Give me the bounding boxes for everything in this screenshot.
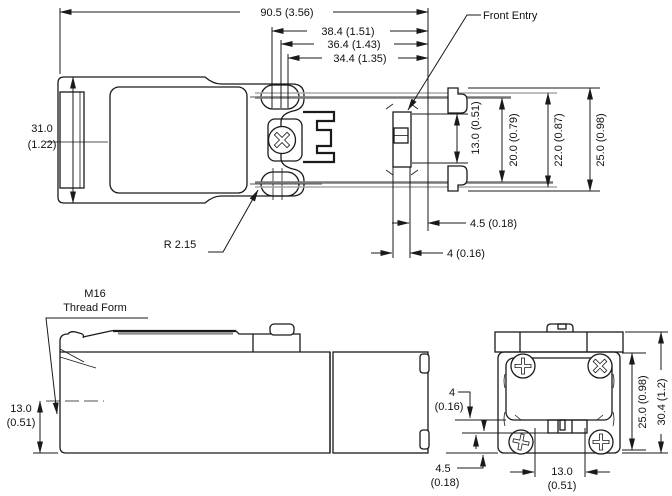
dim-end-width-mm: 13.0 xyxy=(551,466,572,478)
side-body-outline xyxy=(60,352,330,453)
front-entry-block xyxy=(386,104,418,175)
screw-bottom-right xyxy=(589,430,613,454)
dim-end-body-height: 25.0 (0.98) xyxy=(632,353,649,450)
dim-end-bottom-gap-in: (0.18) xyxy=(431,477,460,489)
dim-slot-25-label: 25.0 (0.98) xyxy=(595,113,607,166)
dim-hole-mid-label: 36.4 (1.43) xyxy=(327,39,380,51)
end-connector xyxy=(548,420,587,433)
dim-entry-height: 13.0 (0.51) xyxy=(7,401,104,453)
dim-overall-length: 90.5 (3.56) xyxy=(60,7,428,19)
dim-gap-4-label: 4 (0.16) xyxy=(447,248,485,260)
dim-slot-22: 22.0 (0.87) xyxy=(548,93,565,187)
dim-entry-height-mm: 13.0 xyxy=(10,403,31,415)
dim-body-width: 31.0 (1.22) xyxy=(28,77,73,203)
m16-label-line2: Thread Form xyxy=(63,302,127,314)
dim-entry-height-in: (0.51) xyxy=(7,417,36,429)
dim-body-width-mm: 31.0 xyxy=(31,123,52,135)
cover-screw-button xyxy=(270,324,294,335)
dim-end-bottom-gap: 4.5 (0.18) xyxy=(431,421,484,489)
end-top-tab-notch xyxy=(558,324,566,329)
dim-slot-25: 25.0 (0.98) xyxy=(590,88,607,191)
dim-end-top-gap-in: (0.16) xyxy=(435,401,464,413)
side-view: M16 Thread Form 13.0 (0.51) xyxy=(7,288,429,453)
dim-end-total-height: 30.4 (1.2) xyxy=(656,332,668,453)
dim-end-top-gap: 4 (0.16) xyxy=(435,387,476,449)
dim-hole-inner: 34.4 (1.35) xyxy=(288,53,428,65)
screw-top-left xyxy=(511,354,535,378)
dim-overall-label: 90.5 (3.56) xyxy=(260,7,313,19)
dim-hole-inner-label: 34.4 (1.35) xyxy=(333,53,386,65)
side-cover xyxy=(60,324,300,368)
technical-drawing: 90.5 (3.56) 38.4 (1.51) 36.4 (1.43) 34.4… xyxy=(0,0,672,496)
dim-slot-22-label: 22.0 (0.87) xyxy=(553,113,565,166)
front-entry-callout: Front Entry xyxy=(408,10,538,110)
dim-hole-outer-label: 38.4 (1.51) xyxy=(321,26,374,38)
side-head-notch-bottom xyxy=(420,430,429,449)
side-head-outline xyxy=(333,352,428,453)
dim-slot-13-label: 13.0 (0.51) xyxy=(470,101,482,154)
dim-end-body-height-label: 25.0 (0.98) xyxy=(637,375,649,428)
side-head-notch-top xyxy=(420,354,429,373)
dim-body-width-in: (1.22) xyxy=(28,139,57,151)
top-view: 90.5 (3.56) 38.4 (1.51) 36.4 (1.43) 34.4… xyxy=(28,7,607,260)
front-entry-label: Front Entry xyxy=(483,10,538,22)
end-head-band xyxy=(495,332,623,352)
dim-hole-outer: 38.4 (1.51) xyxy=(272,26,428,38)
dim-gap-45: 4.5 (0.18) xyxy=(392,218,517,230)
m16-callout: M16 Thread Form xyxy=(46,288,148,414)
dim-gap-4: 4 (0.16) xyxy=(371,248,485,260)
end-left-extension-lines xyxy=(446,420,548,453)
dim-end-total-height-label: 30.4 (1.2) xyxy=(656,378,668,425)
dim-slot-20: 20.0 (0.79) xyxy=(502,98,520,182)
dim-end-width-in: (0.51) xyxy=(548,480,577,492)
plunger-step-bracket xyxy=(303,112,334,162)
m16-label-line1: M16 xyxy=(84,288,105,300)
head-screw xyxy=(269,127,296,154)
end-view: 4 (0.16) 4.5 (0.18) 13.0 (0.51) 25.0 xyxy=(431,324,668,492)
screw-bottom-left xyxy=(507,428,535,456)
drawing-canvas: 90.5 (3.56) 38.4 (1.51) 36.4 (1.43) 34.4… xyxy=(0,0,672,496)
radius-label: R 2.15 xyxy=(164,239,196,251)
dim-gap-45-label: 4.5 (0.18) xyxy=(470,218,517,230)
end-top-tab xyxy=(547,324,573,332)
cover-plate xyxy=(110,87,247,193)
dim-end-bottom-gap-mm: 4.5 xyxy=(435,463,450,475)
end-screws xyxy=(507,349,617,456)
dim-hole-mid: 36.4 (1.43) xyxy=(281,39,428,51)
rail-clamp-top xyxy=(448,88,467,113)
dim-end-top-gap-mm: 4 xyxy=(449,387,455,399)
dim-slot-20-label: 20.0 (0.79) xyxy=(508,113,520,166)
